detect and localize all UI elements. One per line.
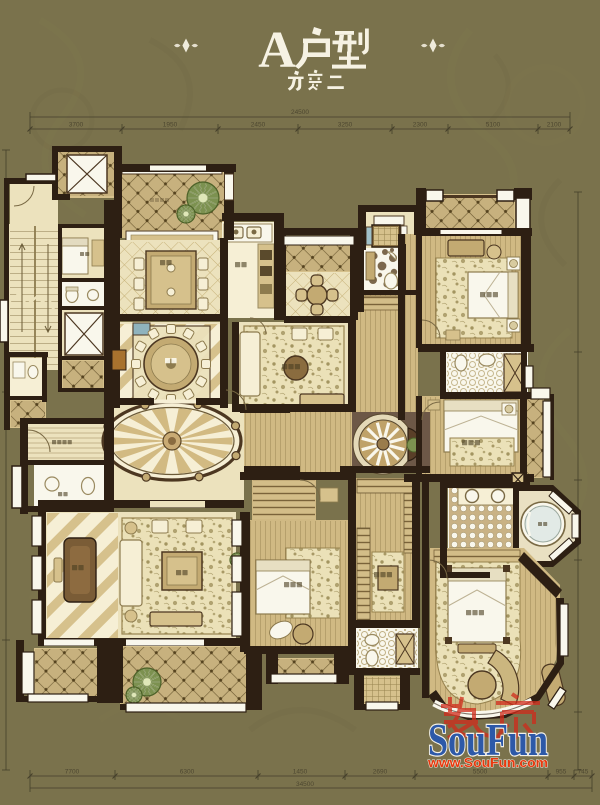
svg-text:2300: 2300 bbox=[413, 122, 428, 129]
svg-text:2450: 2450 bbox=[251, 122, 266, 129]
svg-text:A: A bbox=[258, 22, 296, 79]
svg-text:745: 745 bbox=[578, 769, 589, 776]
svg-text:24500: 24500 bbox=[291, 109, 309, 116]
svg-text:5100: 5100 bbox=[486, 122, 501, 129]
svg-text:1950: 1950 bbox=[163, 122, 178, 129]
svg-text:2100: 2100 bbox=[547, 122, 562, 129]
svg-text:1450: 1450 bbox=[293, 769, 308, 776]
svg-text:6300: 6300 bbox=[180, 769, 195, 776]
svg-text:34500: 34500 bbox=[296, 781, 314, 788]
svg-text:2690: 2690 bbox=[373, 769, 388, 776]
svg-text:955: 955 bbox=[556, 769, 567, 776]
svg-text:3700: 3700 bbox=[69, 122, 84, 129]
svg-text:7700: 7700 bbox=[65, 769, 80, 776]
svg-text:3250: 3250 bbox=[338, 122, 353, 129]
svg-text:www.SouFun.com: www.SouFun.com bbox=[427, 755, 548, 770]
